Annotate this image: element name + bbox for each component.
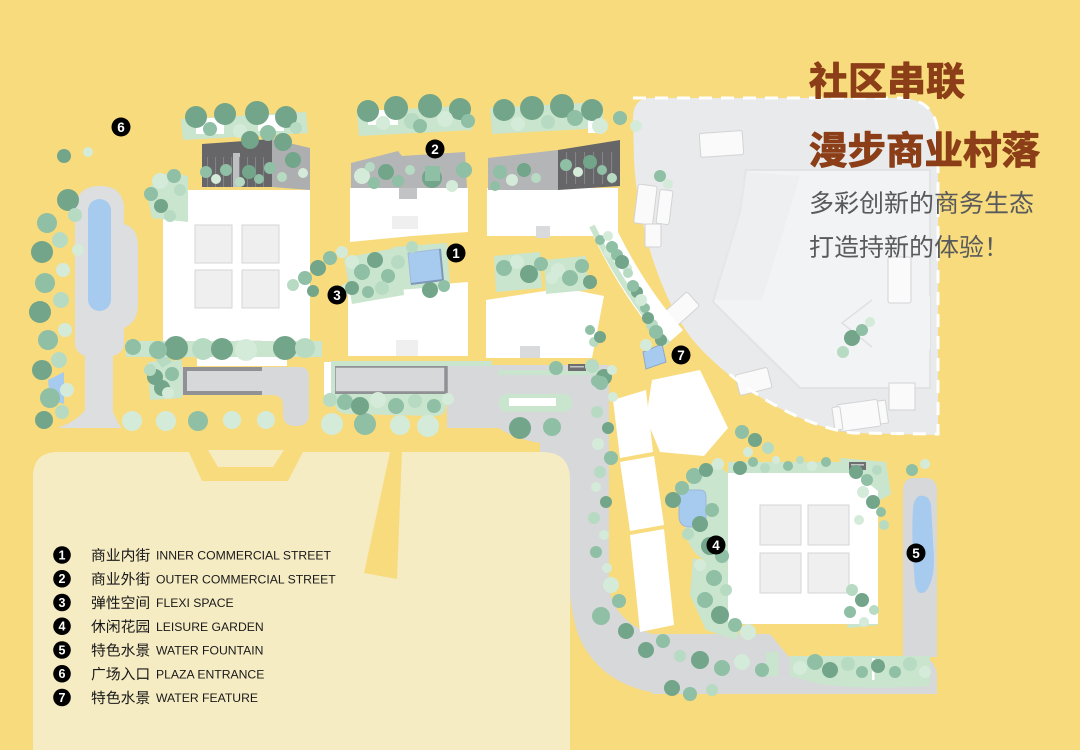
svg-text:FLEXI SPACE: FLEXI SPACE: [156, 596, 234, 610]
svg-text:2: 2: [59, 572, 66, 586]
svg-text:2: 2: [431, 142, 439, 157]
svg-text:3: 3: [59, 596, 66, 610]
svg-text:5: 5: [59, 643, 66, 657]
svg-text:4: 4: [712, 538, 720, 553]
svg-text:3: 3: [333, 288, 341, 303]
svg-text:1: 1: [59, 548, 66, 562]
svg-text:6: 6: [117, 120, 125, 135]
svg-text:WATER FOUNTAIN: WATER FOUNTAIN: [156, 644, 263, 658]
svg-text:7: 7: [677, 348, 685, 363]
svg-text:6: 6: [59, 667, 66, 681]
svg-text:5: 5: [912, 546, 920, 561]
svg-text:PLAZA ENTRANCE: PLAZA ENTRANCE: [156, 667, 264, 681]
svg-text:7: 7: [59, 691, 66, 705]
svg-text:OUTER COMMERCIAL STREET: OUTER COMMERCIAL STREET: [156, 572, 336, 586]
svg-text:4: 4: [59, 620, 66, 634]
svg-text:LEISURE GARDEN: LEISURE GARDEN: [156, 620, 264, 634]
svg-text:INNER COMMERCIAL STREET: INNER COMMERCIAL STREET: [156, 549, 331, 563]
svg-text:WATER FEATURE: WATER FEATURE: [156, 691, 258, 705]
svg-text:1: 1: [452, 246, 460, 261]
